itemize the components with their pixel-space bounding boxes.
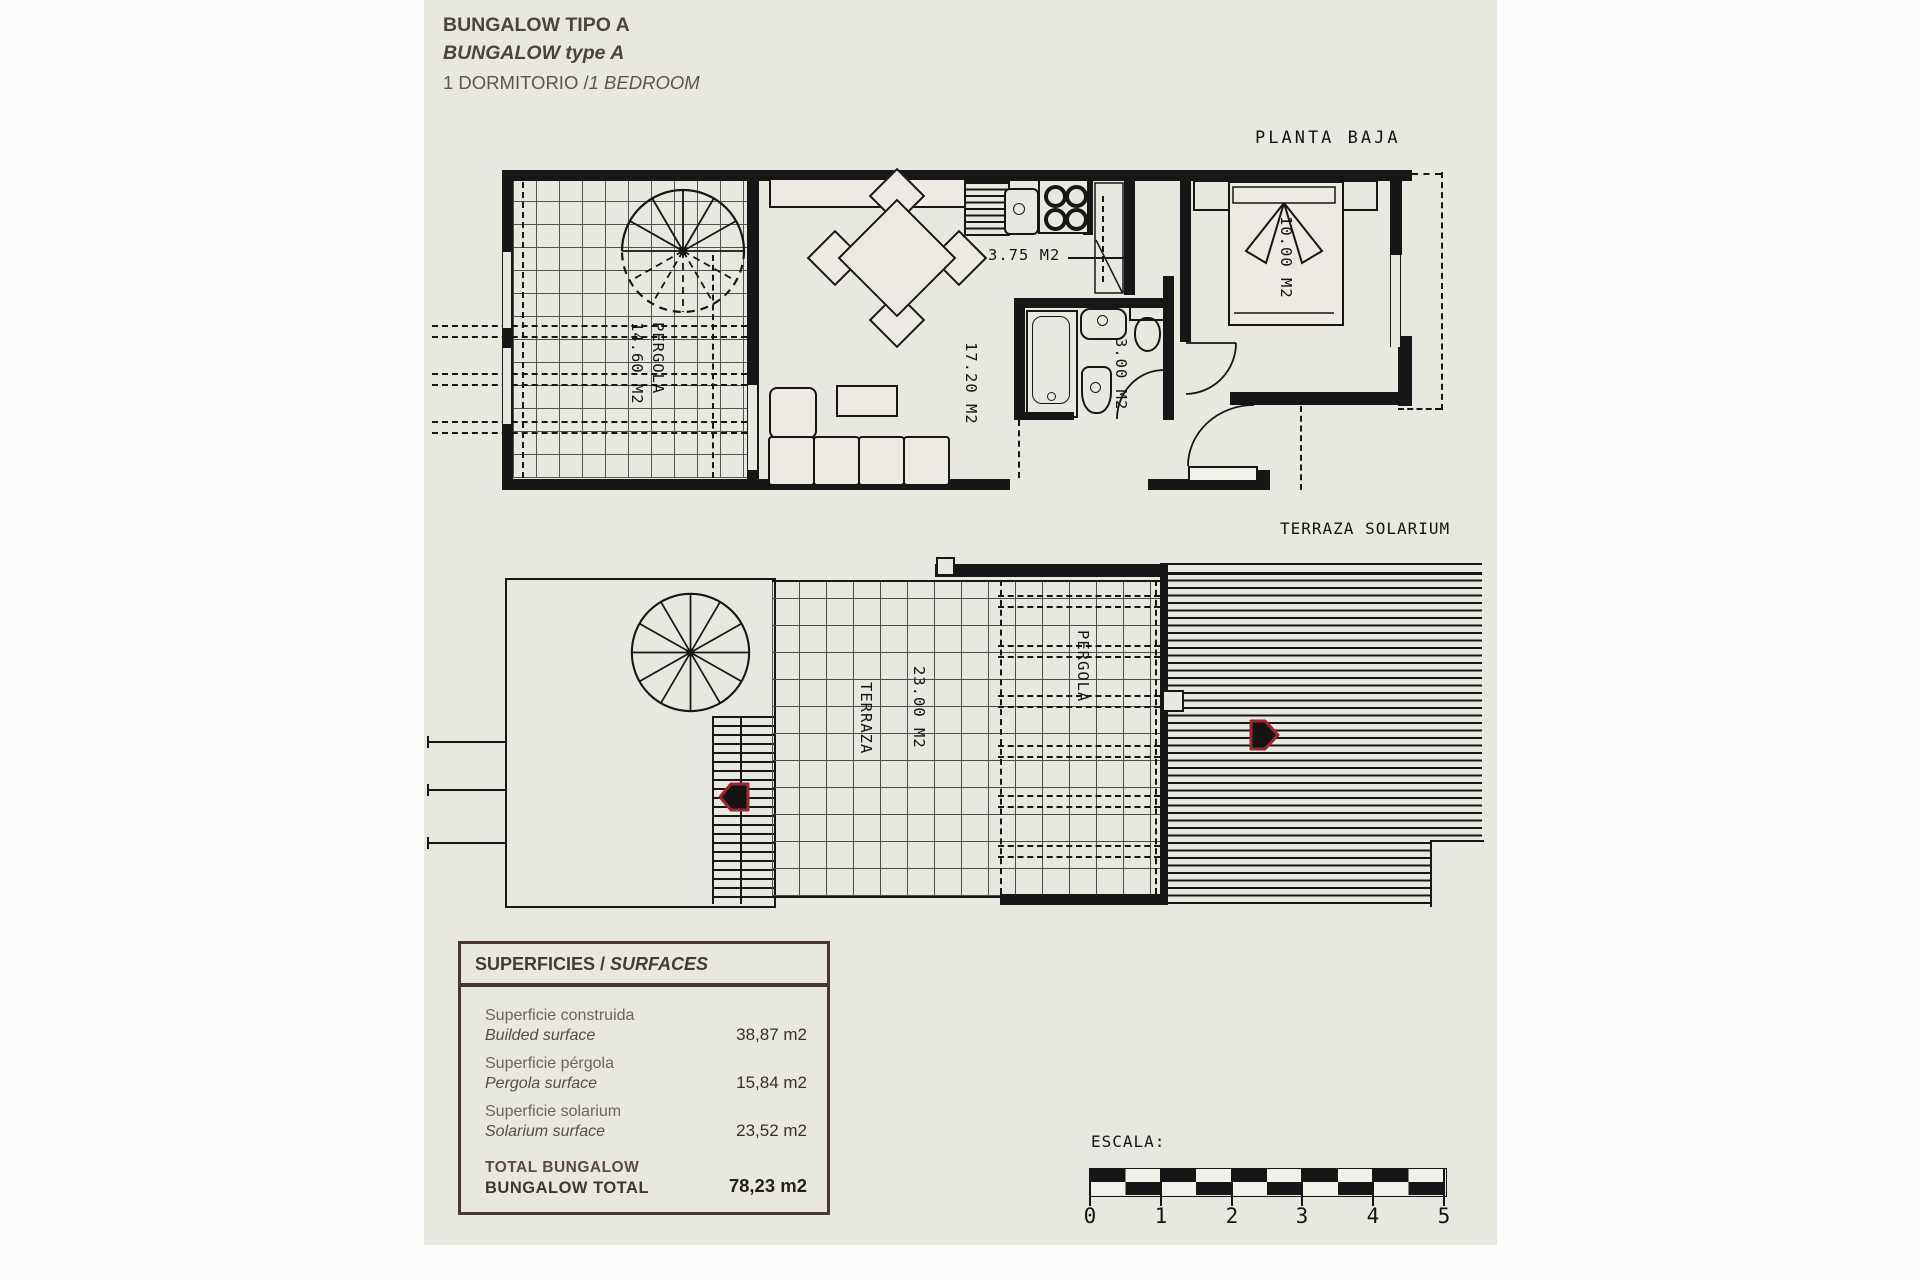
scale-number: 0 bbox=[1075, 1204, 1105, 1228]
row-label-es: Superficie construida bbox=[485, 1006, 634, 1026]
table-row: Superficie construida Builded surface 38… bbox=[485, 1006, 807, 1046]
scale-tick bbox=[1301, 1168, 1303, 1206]
kitchen-area-label: 3.75 M2 bbox=[988, 246, 1060, 264]
wall bbox=[1180, 170, 1191, 342]
row-value: 15,84 m2 bbox=[736, 1073, 807, 1094]
page: BUNGALOW TIPO A BUNGALOW type A 1 DORMIT… bbox=[0, 0, 1920, 1280]
entrance-door-leaf bbox=[1188, 466, 1258, 482]
railing-tick bbox=[427, 784, 429, 796]
table-total-row: TOTAL BUNGALOW BUNGALOW TOTAL 78,23 m2 bbox=[485, 1158, 807, 1198]
sofa-seat bbox=[813, 436, 860, 486]
washbasin-drain-icon bbox=[1097, 315, 1108, 326]
nightstand bbox=[1193, 180, 1232, 211]
window bbox=[1390, 255, 1401, 347]
pergola-column bbox=[1162, 690, 1184, 712]
burner-icon bbox=[1044, 208, 1067, 231]
scale-number: 3 bbox=[1287, 1204, 1317, 1228]
boundary-dashed-line bbox=[1398, 408, 1441, 410]
wall bbox=[1230, 392, 1412, 405]
burner-icon bbox=[1044, 185, 1067, 208]
bathtub-drain-icon bbox=[1047, 392, 1056, 401]
sink-drain-icon bbox=[1013, 203, 1025, 215]
page-subtitle: BUNGALOW type A bbox=[443, 42, 700, 65]
armchair bbox=[769, 387, 817, 439]
row-label-en: Builded surface bbox=[485, 1026, 634, 1046]
pergola-beam bbox=[432, 373, 747, 386]
scale-tick bbox=[1160, 1168, 1162, 1206]
pergola-beam bbox=[998, 745, 1160, 758]
railing-tick bbox=[427, 837, 429, 849]
nightstand bbox=[1339, 180, 1378, 211]
scale-tick bbox=[1089, 1168, 1091, 1206]
sofa-seat bbox=[858, 436, 905, 486]
boundary-dashed-line bbox=[1412, 173, 1441, 175]
closet-door-line bbox=[1094, 182, 1124, 294]
sofa-seat bbox=[903, 436, 950, 486]
bedroom-count-line: 1 DORMITORIO /1 BEDROOM bbox=[443, 72, 700, 94]
page-title: BUNGALOW TIPO A bbox=[443, 14, 700, 37]
wall bbox=[502, 170, 513, 490]
pergola-name: PERGOLA bbox=[647, 322, 668, 405]
toilet-bowl bbox=[1134, 317, 1161, 352]
sideboard bbox=[769, 178, 966, 208]
pergola-beam bbox=[432, 421, 747, 434]
wall bbox=[1000, 894, 1168, 905]
pergola-label: PERGOLA 14.60 M2 bbox=[626, 322, 668, 405]
row-value: 38,87 m2 bbox=[736, 1025, 807, 1046]
bathtub-inner bbox=[1032, 316, 1070, 404]
total-label-es: TOTAL BUNGALOW bbox=[485, 1158, 649, 1178]
sofa-seat bbox=[768, 436, 815, 486]
pergola-beam bbox=[998, 845, 1160, 858]
scale-tick bbox=[1443, 1168, 1445, 1206]
roof-floor-caption: TERRAZA SOLARIUM bbox=[1280, 519, 1450, 538]
scale-number: 2 bbox=[1217, 1204, 1247, 1228]
railing-line bbox=[428, 741, 506, 743]
scale-number: 4 bbox=[1358, 1204, 1388, 1228]
burner-icon bbox=[1065, 208, 1088, 231]
boundary-dashed-line bbox=[1441, 172, 1443, 410]
pergola-column bbox=[936, 557, 955, 576]
coffee-table bbox=[836, 385, 898, 417]
row-label-es: Superficie pérgola bbox=[485, 1054, 614, 1074]
row-label: Superficie pérgola Pergola surface bbox=[485, 1054, 614, 1094]
table-row: Superficie pérgola Pergola surface 15,84… bbox=[485, 1054, 807, 1094]
scale-bar-top-row bbox=[1090, 1169, 1444, 1182]
pergola-beam bbox=[432, 325, 747, 338]
terrace-area-label: 23.00 M2 bbox=[910, 666, 928, 749]
ground-floor-caption: PLANTA BAJA bbox=[1255, 128, 1401, 148]
scale-bar-bottom-row bbox=[1090, 1182, 1444, 1195]
bidet-drain-icon bbox=[1090, 382, 1101, 393]
spiral-stair-icon bbox=[618, 186, 748, 316]
row-label: TOTAL BUNGALOW BUNGALOW TOTAL bbox=[485, 1158, 649, 1198]
row-label-en: Pergola surface bbox=[485, 1074, 614, 1094]
pergola-beam bbox=[998, 795, 1160, 808]
opening-dashed-line bbox=[1300, 406, 1302, 490]
deck-step-notch bbox=[1430, 840, 1484, 907]
bedroom-count-es: 1 DORMITORIO / bbox=[443, 72, 589, 93]
pergola-area-value: 14.60 M2 bbox=[626, 322, 647, 405]
bedroom-door-arc bbox=[1184, 341, 1238, 397]
row-value: 23,52 m2 bbox=[736, 1121, 807, 1142]
window bbox=[502, 252, 512, 328]
scale-tick bbox=[1231, 1168, 1233, 1206]
surfaces-header-en: SURFACES bbox=[610, 954, 708, 974]
railing-tick bbox=[427, 736, 429, 748]
surfaces-table: SUPERFICIES /SURFACES Superficie constru… bbox=[458, 941, 830, 1215]
scale-label: ESCALA: bbox=[1091, 1132, 1165, 1151]
surfaces-header-rule bbox=[461, 983, 827, 987]
direction-arrow-left bbox=[718, 781, 750, 813]
opening-dashed-line bbox=[1018, 420, 1020, 478]
table-row: Superficie solarium Solarium surface 23,… bbox=[485, 1102, 807, 1142]
scale-number: 5 bbox=[1429, 1204, 1459, 1228]
scale-tick bbox=[1372, 1168, 1374, 1206]
total-label-en: BUNGALOW TOTAL bbox=[485, 1178, 649, 1198]
sliding-door bbox=[747, 385, 758, 470]
surfaces-table-header: SUPERFICIES /SURFACES bbox=[475, 954, 708, 975]
title-block: BUNGALOW TIPO A BUNGALOW type A 1 DORMIT… bbox=[443, 14, 700, 94]
row-label: Superficie solarium Solarium surface bbox=[485, 1102, 621, 1142]
entrance-door-arc bbox=[1188, 405, 1254, 466]
railing-line bbox=[428, 842, 506, 844]
pergola-dashed-line bbox=[522, 182, 524, 478]
row-label-en: Solarium surface bbox=[485, 1122, 621, 1142]
burner-icon bbox=[1065, 185, 1088, 208]
row-label-es: Superficie solarium bbox=[485, 1102, 621, 1122]
bedroom-area-label: 10.00 M2 bbox=[1277, 216, 1295, 299]
terrace-name-label: TERRAZA bbox=[857, 682, 875, 754]
bathroom-area-label: 3.00 M2 bbox=[1112, 338, 1130, 410]
scale-number: 1 bbox=[1146, 1204, 1176, 1228]
wall bbox=[1124, 170, 1135, 295]
surfaces-header-es: SUPERFICIES / bbox=[475, 954, 605, 974]
spiral-stair-icon bbox=[628, 590, 753, 715]
total-value: 78,23 m2 bbox=[729, 1175, 807, 1198]
row-label: Superficie construida Builded surface bbox=[485, 1006, 634, 1046]
direction-arrow-right bbox=[1249, 717, 1281, 753]
bedroom-count-en: 1 BEDROOM bbox=[589, 72, 700, 93]
wall bbox=[935, 564, 1165, 577]
pergola-beam bbox=[998, 595, 1160, 608]
wall bbox=[1160, 563, 1168, 905]
wall bbox=[1014, 298, 1025, 420]
living-area-label: 17.20 M2 bbox=[962, 342, 980, 425]
window bbox=[502, 348, 512, 424]
roof-pergola-label: PERGOLA bbox=[1074, 630, 1092, 702]
wall bbox=[1390, 180, 1402, 255]
railing-line bbox=[428, 789, 506, 791]
